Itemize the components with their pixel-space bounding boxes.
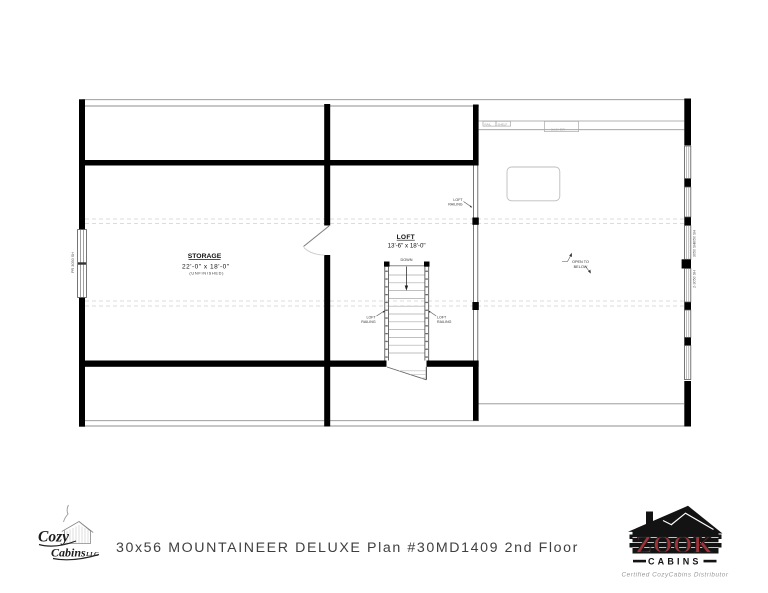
svg-text:Cabins: Cabins bbox=[51, 546, 86, 560]
svg-text:DOWN: DOWN bbox=[400, 258, 412, 262]
svg-text:13'-6" x 18'-0": 13'-6" x 18'-0" bbox=[388, 243, 426, 250]
svg-text:LOFT: LOFT bbox=[437, 315, 447, 319]
svg-text:22'-0" x 18'-0": 22'-0" x 18'-0" bbox=[182, 263, 230, 270]
svg-text:SHELF: SHELF bbox=[498, 122, 508, 126]
svg-text:RAIL: RAIL bbox=[485, 122, 492, 126]
svg-text:RAILING: RAILING bbox=[361, 320, 376, 324]
svg-text:30x56 MOUNTAINEER DELUXE Plan: 30x56 MOUNTAINEER DELUXE Plan #30MD1409 … bbox=[116, 540, 579, 556]
svg-text:3050 SH: 3050 SH bbox=[693, 229, 697, 244]
svg-text:PR 3050 SH: PR 3050 SH bbox=[71, 252, 75, 273]
svg-text:CABINS: CABINS bbox=[648, 557, 702, 567]
svg-text:3050 SH: 3050 SH bbox=[693, 242, 697, 257]
svg-text:ZOOK: ZOOK bbox=[636, 532, 714, 559]
svg-text:OPEN TO: OPEN TO bbox=[572, 260, 589, 264]
svg-text:RAILING: RAILING bbox=[448, 202, 463, 206]
svg-text:2x10 HDR: 2x10 HDR bbox=[551, 128, 566, 132]
svg-text:(UNFINISHED): (UNFINISHED) bbox=[189, 270, 224, 275]
svg-text:Cozy: Cozy bbox=[38, 529, 69, 546]
svg-text:LOFT: LOFT bbox=[367, 315, 377, 319]
svg-text:Certified CozyCabins Distrib: Certified CozyCabins Distributor bbox=[622, 572, 729, 579]
svg-text:RAILING: RAILING bbox=[437, 320, 452, 324]
svg-text:2-3050 SH: 2-3050 SH bbox=[693, 270, 697, 288]
svg-text:LOFT: LOFT bbox=[453, 198, 463, 202]
